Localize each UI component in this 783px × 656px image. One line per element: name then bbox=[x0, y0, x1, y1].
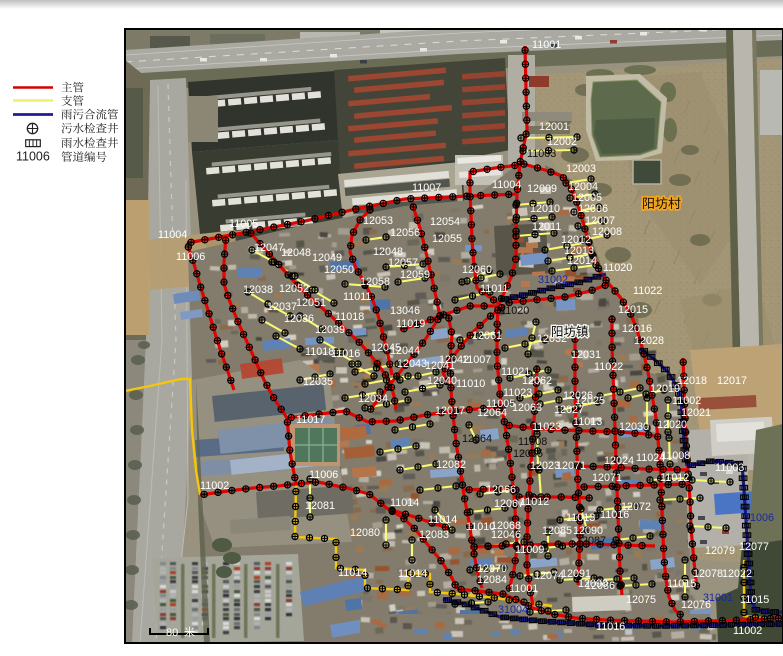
svg-text:12027: 12027 bbox=[554, 404, 584, 416]
svg-text:12014: 12014 bbox=[567, 255, 597, 267]
svg-text:12003: 12003 bbox=[566, 163, 596, 175]
svg-text:11016: 11016 bbox=[596, 621, 625, 633]
svg-text:12030: 12030 bbox=[619, 421, 649, 433]
svg-text:11015: 11015 bbox=[667, 578, 696, 590]
svg-text:12046: 12046 bbox=[491, 529, 521, 541]
svg-text:12062: 12062 bbox=[522, 375, 552, 387]
svg-text:12055: 12055 bbox=[432, 233, 462, 245]
svg-text:12019: 12019 bbox=[650, 383, 680, 395]
svg-text:11015: 11015 bbox=[740, 594, 769, 606]
svg-text:12077: 12077 bbox=[739, 541, 769, 553]
svg-text:12020: 12020 bbox=[657, 419, 687, 431]
svg-text:11020: 11020 bbox=[500, 305, 529, 317]
svg-text:12060: 12060 bbox=[462, 264, 492, 276]
svg-text:11020: 11020 bbox=[603, 262, 632, 274]
svg-text:11007: 11007 bbox=[412, 182, 441, 194]
svg-text:12081: 12081 bbox=[305, 500, 335, 512]
svg-text:12006: 12006 bbox=[578, 203, 608, 215]
svg-text:12022: 12022 bbox=[722, 568, 752, 580]
svg-text:11008: 11008 bbox=[518, 436, 547, 448]
svg-text:11002: 11002 bbox=[672, 395, 701, 407]
svg-text:12054: 12054 bbox=[430, 216, 460, 228]
svg-text:11006: 11006 bbox=[176, 251, 205, 263]
svg-text:12016: 12016 bbox=[622, 323, 652, 335]
svg-text:11001: 11001 bbox=[509, 583, 538, 595]
svg-text:11019: 11019 bbox=[396, 318, 425, 330]
svg-text:12071: 12071 bbox=[592, 472, 622, 484]
svg-text:11012: 11012 bbox=[520, 496, 549, 508]
svg-text:12024: 12024 bbox=[604, 455, 634, 467]
svg-text:12008: 12008 bbox=[592, 226, 622, 238]
svg-text:11014: 11014 bbox=[390, 497, 419, 509]
svg-text:12028: 12028 bbox=[634, 335, 664, 347]
svg-text:12083: 12083 bbox=[419, 529, 449, 541]
svg-text:12080: 12080 bbox=[350, 527, 380, 539]
svg-text:12038: 12038 bbox=[243, 284, 273, 296]
svg-text:12037: 12037 bbox=[267, 301, 297, 313]
svg-text:11002: 11002 bbox=[733, 625, 762, 637]
svg-text:31006: 31006 bbox=[744, 512, 774, 524]
svg-text:12017: 12017 bbox=[435, 405, 465, 417]
svg-text:11017: 11017 bbox=[296, 414, 325, 426]
svg-text:11018: 11018 bbox=[335, 311, 364, 323]
svg-text:11007: 11007 bbox=[462, 354, 491, 366]
svg-text:12001: 12001 bbox=[539, 121, 569, 133]
svg-text:11006: 11006 bbox=[309, 469, 338, 481]
svg-text:12050: 12050 bbox=[324, 264, 354, 276]
svg-text:13046: 13046 bbox=[390, 305, 420, 317]
svg-text:12066: 12066 bbox=[486, 484, 516, 496]
svg-text:11004: 11004 bbox=[492, 179, 521, 191]
svg-text:11014: 11014 bbox=[338, 567, 367, 579]
svg-text:12058: 12058 bbox=[360, 276, 390, 288]
svg-text:11002: 11002 bbox=[200, 480, 229, 492]
svg-text:11005: 11005 bbox=[229, 218, 258, 230]
svg-text:12011: 12011 bbox=[532, 221, 561, 233]
svg-text:31001: 31001 bbox=[703, 592, 733, 604]
svg-text:12056: 12056 bbox=[390, 227, 420, 239]
svg-text:12084: 12084 bbox=[477, 574, 507, 586]
svg-text:12074: 12074 bbox=[534, 570, 564, 582]
svg-text:12051: 12051 bbox=[296, 297, 326, 309]
svg-text:12078: 12078 bbox=[693, 568, 723, 580]
svg-text:12086: 12086 bbox=[585, 580, 615, 592]
svg-text:12057: 12057 bbox=[388, 257, 418, 269]
svg-text:12043: 12043 bbox=[397, 358, 427, 370]
svg-text:12064: 12064 bbox=[462, 433, 492, 445]
svg-text:12039: 12039 bbox=[315, 324, 345, 336]
svg-text:11022: 11022 bbox=[594, 361, 623, 373]
svg-text:11013: 11013 bbox=[573, 416, 602, 428]
svg-text:12052: 12052 bbox=[279, 283, 309, 295]
svg-text:11003: 11003 bbox=[527, 148, 556, 160]
svg-text:12031: 12031 bbox=[571, 349, 601, 361]
svg-text:12072: 12072 bbox=[621, 501, 651, 513]
svg-text:11004: 11004 bbox=[158, 229, 187, 241]
svg-text:12015: 12015 bbox=[618, 304, 648, 316]
svg-text:12048: 12048 bbox=[281, 247, 311, 259]
svg-text:12079: 12079 bbox=[705, 545, 735, 557]
svg-text:80: 80 bbox=[166, 627, 178, 639]
svg-text:11014: 11014 bbox=[398, 568, 427, 580]
svg-text:11006: 11006 bbox=[16, 150, 50, 164]
svg-text:12061: 12061 bbox=[472, 330, 502, 342]
svg-text:11011: 11011 bbox=[480, 283, 508, 295]
svg-text:12047: 12047 bbox=[254, 242, 284, 254]
svg-text:12071: 12071 bbox=[556, 460, 586, 472]
svg-text:12010: 12010 bbox=[530, 203, 560, 215]
svg-text:12064: 12064 bbox=[477, 407, 507, 419]
svg-text:11008: 11008 bbox=[661, 450, 690, 462]
svg-text:12034: 12034 bbox=[358, 393, 388, 405]
svg-text:12087: 12087 bbox=[576, 535, 606, 547]
svg-text:12036: 12036 bbox=[284, 313, 314, 325]
svg-text:11013: 11013 bbox=[566, 512, 595, 524]
svg-text:12021: 12021 bbox=[681, 407, 711, 419]
svg-text:11018: 11018 bbox=[305, 346, 334, 358]
svg-text:12017: 12017 bbox=[717, 375, 747, 387]
svg-text:11016: 11016 bbox=[331, 348, 360, 360]
svg-text:12053: 12053 bbox=[363, 215, 393, 227]
svg-text:11012: 11012 bbox=[660, 472, 689, 484]
svg-text:12009: 12009 bbox=[527, 183, 557, 195]
svg-text:12075: 12075 bbox=[626, 594, 656, 606]
svg-text:11009: 11009 bbox=[515, 544, 544, 556]
svg-text:12018: 12018 bbox=[677, 375, 707, 387]
svg-text:12059: 12059 bbox=[400, 269, 430, 281]
svg-text:11001: 11001 bbox=[532, 39, 561, 51]
svg-text:11022: 11022 bbox=[633, 285, 662, 297]
svg-text:12035: 12035 bbox=[303, 376, 333, 388]
svg-text:12002: 12002 bbox=[547, 136, 577, 148]
svg-text:12065: 12065 bbox=[513, 448, 543, 460]
svg-text:12063: 12063 bbox=[512, 402, 542, 414]
svg-text:11011: 11011 bbox=[343, 291, 371, 303]
svg-text:11023: 11023 bbox=[532, 421, 561, 433]
svg-text:12048: 12048 bbox=[373, 246, 403, 258]
svg-text:11010: 11010 bbox=[456, 378, 485, 390]
svg-text:31002: 31002 bbox=[538, 274, 568, 286]
svg-text:12044: 12044 bbox=[390, 345, 420, 357]
svg-text:31004: 31004 bbox=[498, 604, 528, 616]
svg-text:12085: 12085 bbox=[542, 525, 572, 537]
svg-text:12041: 12041 bbox=[425, 360, 455, 372]
svg-text:12040: 12040 bbox=[427, 375, 457, 387]
svg-text:12049: 12049 bbox=[312, 252, 342, 264]
svg-text:11014: 11014 bbox=[428, 514, 457, 526]
svg-text:11003: 11003 bbox=[715, 462, 744, 474]
svg-text:12082: 12082 bbox=[436, 459, 466, 471]
